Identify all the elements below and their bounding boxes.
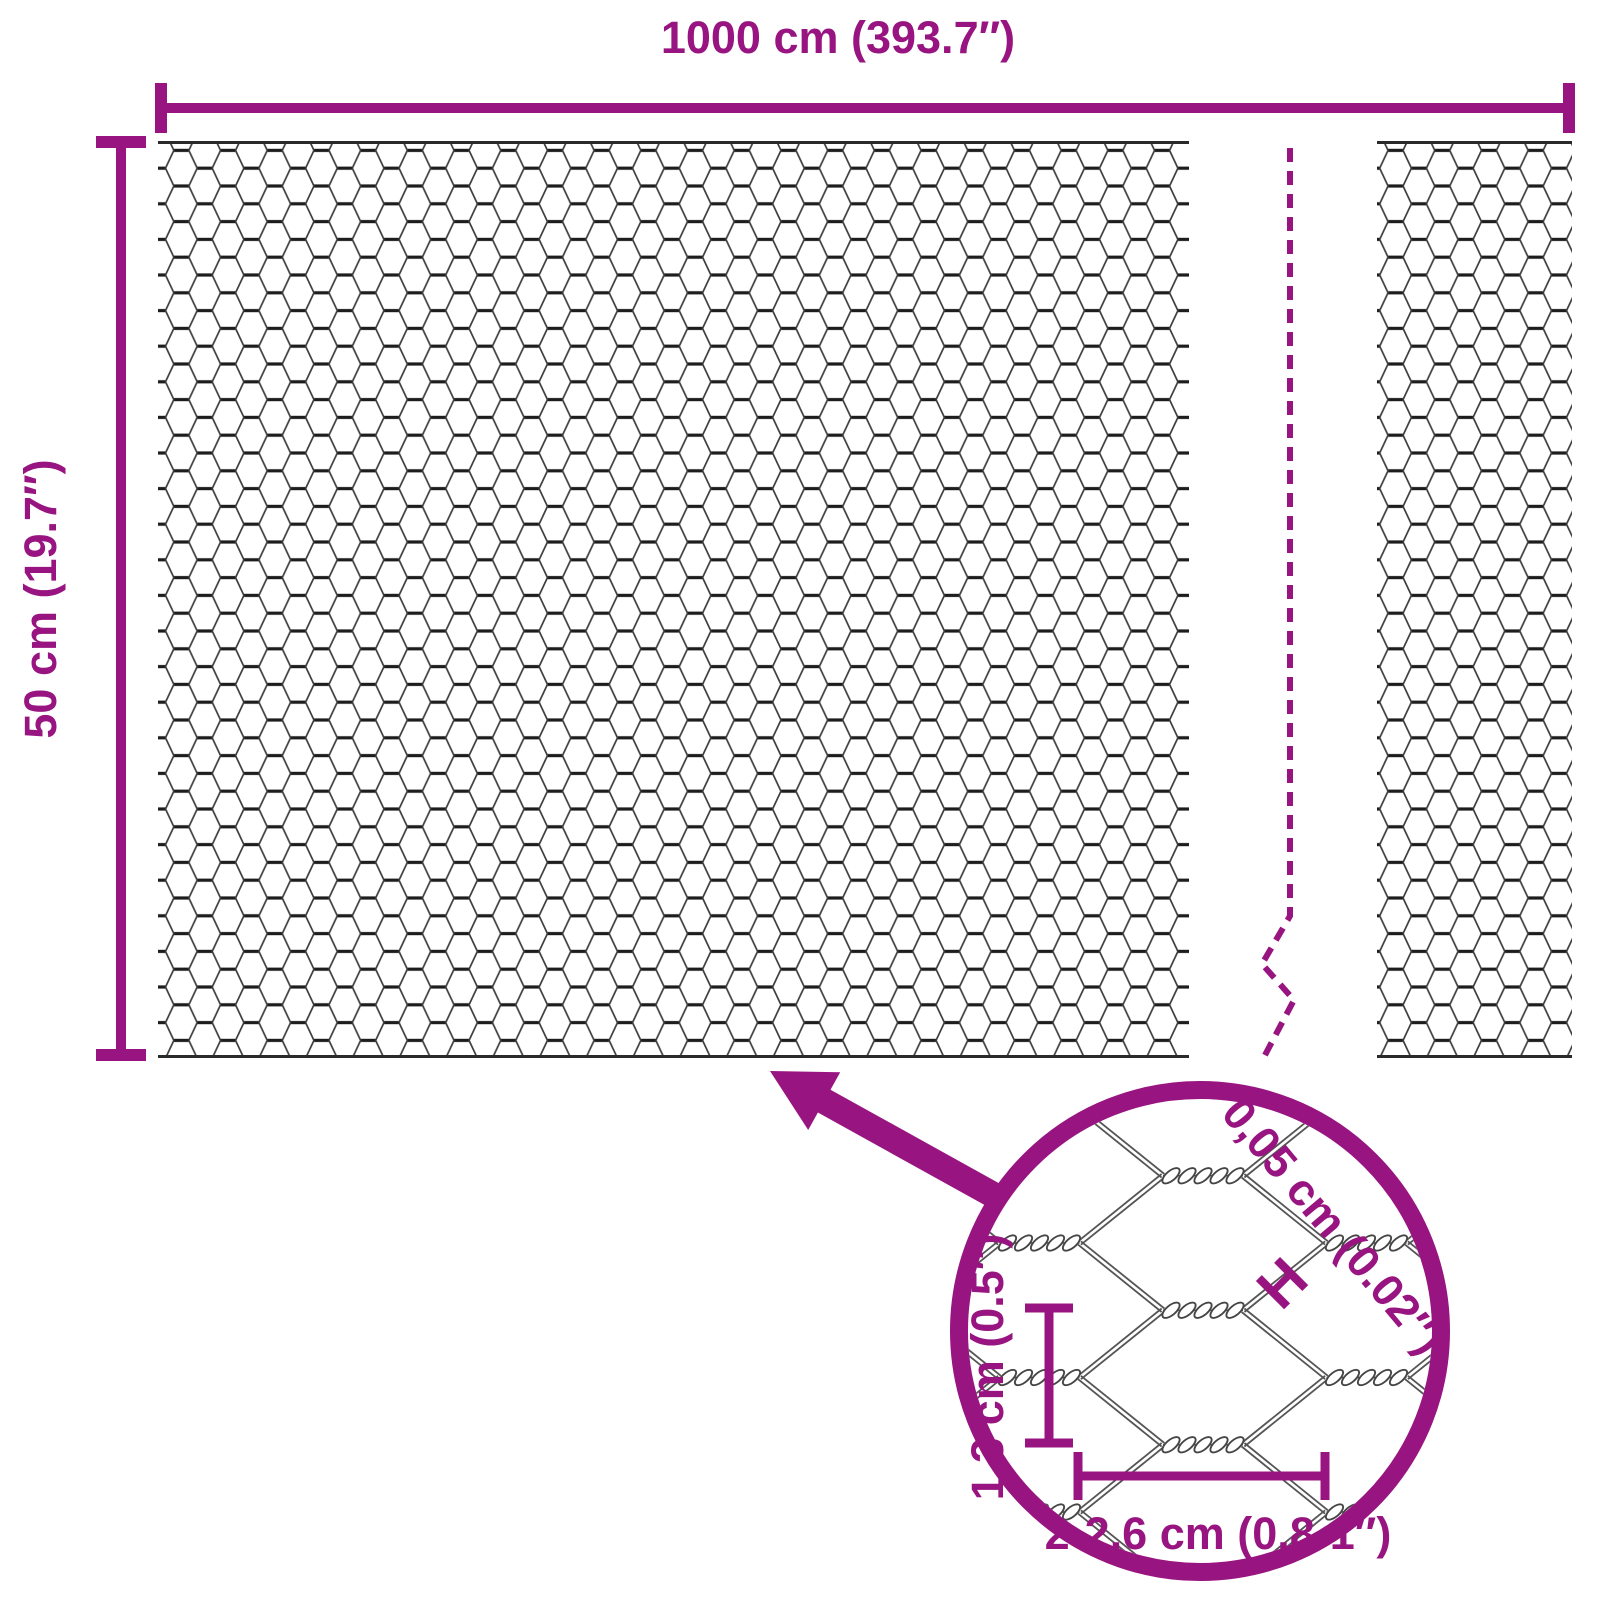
opening-height-label: 1,3 cm (0.5″) [962, 1234, 1013, 1501]
right-mesh-panel [1377, 141, 1572, 1058]
opening-width-label: 2-2,6 cm (0.8-1″) [1045, 1508, 1392, 1559]
right-mesh-texture [1377, 141, 1572, 1058]
left-height-dimension: 50 cm (19.7″) [15, 142, 146, 1055]
main-mesh-texture [158, 141, 1189, 1058]
zoom-arrow-icon [770, 1071, 1003, 1208]
product-dimension-diagram: 1000 cm (393.7″) 50 cm (19.7″) H 0,05 cm… [0, 0, 1600, 1600]
break-line-icon [1262, 148, 1294, 1057]
zoom-detail-circle: H 0,05 cm (0.02″) 1,3 cm (0.5″) 2-2,6 cm… [751, 1031, 1600, 1600]
top-width-dimension: 1000 cm (393.7″) [161, 12, 1569, 133]
overall-width-label: 1000 cm (393.7″) [661, 12, 1015, 63]
overall-height-label: 50 cm (19.7″) [15, 459, 66, 738]
main-mesh-panel [158, 141, 1189, 1058]
